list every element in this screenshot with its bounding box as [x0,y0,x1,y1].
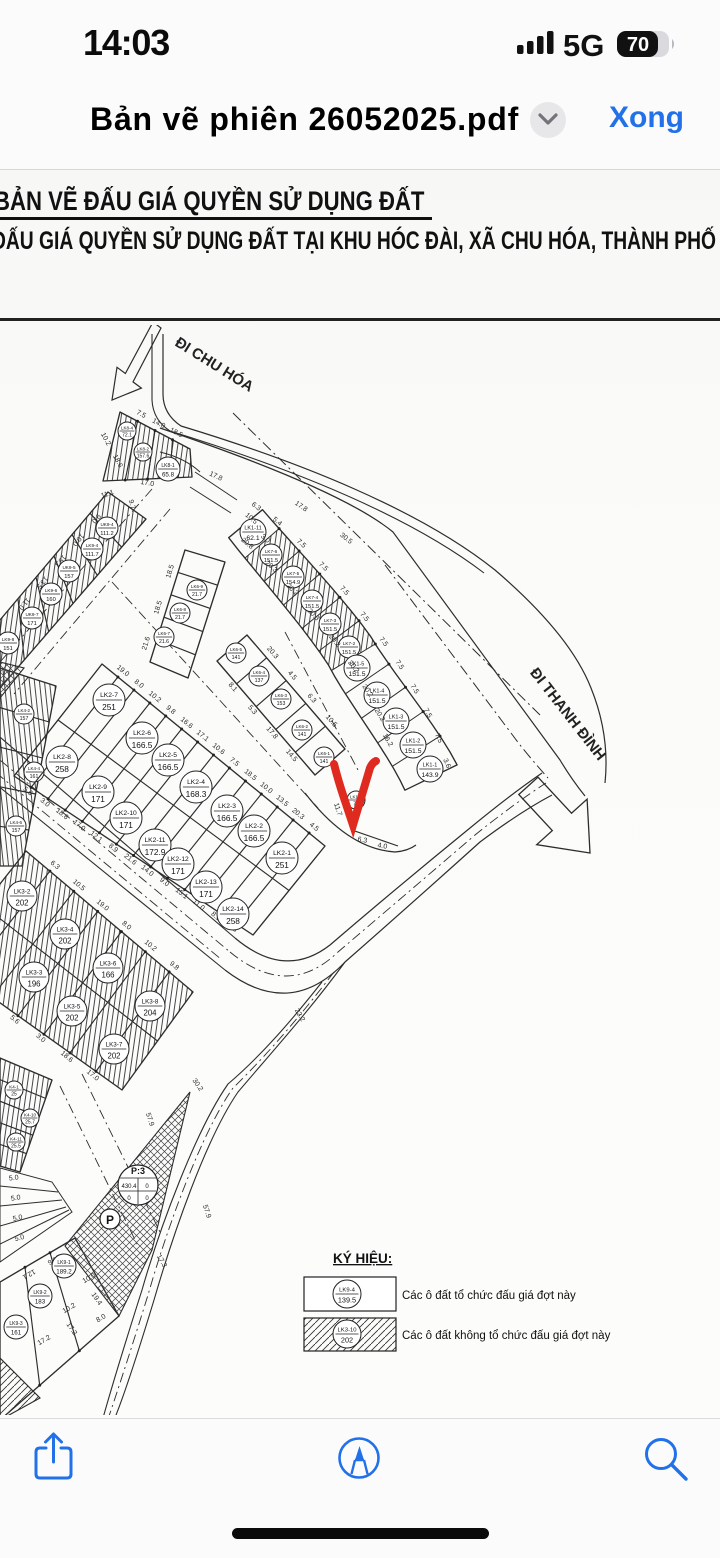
svg-text:18.6: 18.6 [54,807,69,821]
svg-text:17.2: 17.2 [37,1334,52,1347]
svg-text:LK2-5: LK2-5 [159,752,177,759]
svg-text:21.6: 21.6 [159,639,169,645]
svg-text:189.2: 189.2 [56,1268,72,1275]
svg-text:157: 157 [64,574,74,580]
svg-text:19.4: 19.4 [89,1292,103,1307]
svg-text:171: 171 [199,889,213,899]
svg-text:25.7: 25.7 [25,1120,35,1126]
svg-text:LK7-4: LK7-4 [306,595,319,600]
svg-text:LK6-8: LK6-8 [174,607,187,612]
svg-text:LK9-2: LK9-2 [33,1290,47,1296]
svg-text:Các ô đất tổ chức đấu giá đợt: Các ô đất tổ chức đấu giá đợt này [402,1290,576,1302]
svg-text:12.1: 12.1 [21,1267,36,1280]
svg-text:17.8: 17.8 [293,500,308,514]
svg-text:LK9-6: LK9-6 [45,588,58,593]
svg-text:LK2-8: LK2-8 [53,754,71,761]
svg-text:7.5: 7.5 [317,561,329,573]
svg-text:151.5: 151.5 [404,748,421,755]
svg-text:LK3-8: LK3-8 [142,998,159,1005]
svg-text:LK2-3: LK2-3 [218,803,236,810]
svg-text:111.7: 111.7 [85,552,98,558]
svg-text:LK7-2: LK7-2 [343,641,356,646]
svg-text:15.1: 15.1 [174,887,189,901]
svg-text:14.0: 14.0 [151,418,166,431]
svg-text:ĐI CHU HÓA: ĐI CHU HÓA [172,333,257,396]
svg-text:LK1-2: LK1-2 [406,739,421,745]
svg-text:21.6: 21.6 [141,636,152,651]
svg-text:151.5: 151.5 [387,724,404,731]
svg-text:LK3-10: LK3-10 [338,1328,358,1334]
svg-text:7.5: 7.5 [377,636,389,648]
svg-text:204: 204 [143,1008,157,1017]
svg-text:12.1: 12.1 [88,830,103,844]
svg-text:141: 141 [298,732,307,738]
svg-text:LK2-7: LK2-7 [100,692,118,699]
svg-text:UK9-7: UK9-7 [25,612,38,617]
svg-text:P:3: P:3 [131,1166,145,1176]
svg-text:LK6-7: LK6-7 [158,631,171,636]
svg-text:16.2: 16.2 [381,733,394,748]
svg-text:17.8: 17.8 [265,726,279,741]
svg-text:5.0: 5.0 [10,1194,21,1203]
svg-text:LK2-13: LK2-13 [195,879,217,886]
svg-text:LK2-2: LK2-2 [245,823,263,830]
svg-text:7.5: 7.5 [135,409,147,420]
svg-text:21.7: 21.7 [192,592,202,598]
svg-text:LK3-2: LK3-2 [14,888,31,895]
svg-text:65.8: 65.8 [162,471,175,478]
svg-text:141: 141 [320,759,329,765]
svg-text:202: 202 [58,936,71,945]
svg-text:LK6-9: LK6-9 [191,584,204,589]
svg-text:LK7-5: LK7-5 [287,571,300,576]
svg-text:UK9-4: UK9-4 [100,522,113,527]
svg-text:8.0: 8.0 [95,1313,107,1324]
svg-text:111.2: 111.2 [100,531,113,537]
svg-text:7.5: 7.5 [394,659,405,671]
svg-text:5.4: 5.4 [271,516,283,528]
svg-text:LK6-3: LK6-3 [275,693,288,698]
svg-text:14.0: 14.0 [140,864,155,878]
svg-text:166.5: 166.5 [217,813,238,823]
svg-text:17.2: 17.2 [64,1322,78,1337]
svg-text:57.9: 57.9 [144,1112,155,1127]
svg-text:18.5: 18.5 [168,427,183,440]
svg-text:196: 196 [27,979,40,988]
svg-text:183: 183 [35,1298,46,1305]
svg-text:202: 202 [15,898,28,907]
svg-text:LK3-7: LK3-7 [106,1041,123,1048]
svg-text:LK6-5: LK6-5 [230,647,243,652]
svg-text:LK2-1: LK2-1 [273,850,291,857]
svg-text:LK4-2: LK4-2 [18,708,31,713]
svg-text:8.0: 8.0 [120,920,132,932]
svg-text:LK9-8: LK9-8 [2,637,15,642]
svg-text:151: 151 [3,646,13,652]
svg-text:151.5: 151.5 [368,698,385,705]
svg-text:157: 157 [20,716,29,722]
svg-text:LK6-2: LK6-2 [296,724,309,729]
svg-text:LK8-4: LK8-4 [121,425,134,430]
svg-text:LK9-3: LK9-3 [9,1321,23,1327]
svg-text:172.9: 172.9 [145,847,166,857]
svg-text:LK2-9: LK2-9 [89,784,107,791]
svg-text:141: 141 [232,655,241,661]
svg-text:P: P [106,1213,114,1227]
svg-text:168.3: 168.3 [186,789,207,799]
svg-text:57.9: 57.9 [201,1204,212,1219]
svg-text:137: 137 [255,678,264,684]
svg-text:LK2-11: LK2-11 [144,837,165,844]
svg-text:8.0: 8.0 [133,678,145,690]
svg-text:LK2-14: LK2-14 [222,906,244,913]
svg-text:171: 171 [119,820,133,830]
svg-text:17.0: 17.0 [140,479,155,488]
svg-text:LK9-4: LK9-4 [86,543,99,548]
svg-text:6.3: 6.3 [357,836,368,845]
svg-text:UK9-5: UK9-5 [62,565,75,570]
svg-text:171: 171 [91,794,105,804]
svg-text:18.5: 18.5 [153,600,164,615]
svg-text:7.5: 7.5 [422,707,433,719]
svg-text:251: 251 [275,860,289,870]
svg-text:LK2-12: LK2-12 [167,856,189,863]
svg-text:LK4-6: LK4-6 [10,820,23,825]
svg-text:258: 258 [226,916,240,926]
svg-text:161: 161 [11,1329,22,1336]
svg-text:18.5: 18.5 [165,564,176,579]
svg-text:14.5: 14.5 [284,748,298,763]
svg-text:72.1: 72.1 [122,433,132,439]
svg-text:LK3-4: LK3-4 [57,926,74,933]
svg-text:10.2: 10.2 [99,432,112,447]
svg-text:258: 258 [55,764,69,774]
svg-text:5G: 5G [563,28,604,62]
svg-text:166: 166 [101,970,114,979]
svg-text:166.5: 166.5 [158,762,179,772]
svg-text:LK4-4: LK4-4 [28,766,41,771]
svg-text:LK3-6: LK3-6 [100,960,117,967]
svg-text:171: 171 [171,866,185,876]
svg-text:202: 202 [107,1051,120,1060]
svg-text:5.0: 5.0 [12,1214,23,1223]
svg-text:LK7-3: LK7-3 [324,618,337,623]
svg-text:30.5: 30.5 [338,532,353,546]
svg-text:251: 251 [102,702,116,712]
svg-text:LK1-3: LK1-3 [389,715,404,721]
svg-text:143.9: 143.9 [421,772,438,779]
svg-text:7.5: 7.5 [228,756,240,768]
svg-text:70: 70 [627,34,649,56]
svg-text:9.8: 9.8 [168,960,180,972]
svg-text:153: 153 [277,701,286,707]
svg-text:10.2: 10.2 [62,1302,77,1315]
svg-text:LK2-10: LK2-10 [115,810,137,817]
svg-text:LK8-1: LK8-1 [161,463,175,469]
svg-text:LK1-11: LK1-11 [244,526,261,532]
svg-text:K4-10: K4-10 [24,1112,37,1117]
svg-text:171: 171 [27,621,37,627]
svg-text:LK3-5: LK3-5 [64,1003,81,1010]
svg-text:11.7: 11.7 [332,802,343,817]
svg-text:LK7-6: LK7-6 [265,549,278,554]
svg-text:21.7: 21.7 [175,615,185,621]
svg-text:17.8: 17.8 [208,471,223,483]
svg-text:K4-11: K4-11 [10,1136,22,1141]
svg-text:139.5: 139.5 [338,1296,356,1305]
svg-text:202: 202 [65,1013,78,1022]
svg-text:25: 25 [11,1092,17,1098]
svg-text:LK9-1: LK9-1 [57,1260,71,1266]
svg-text:7.5: 7.5 [338,585,350,597]
svg-text:166.5: 166.5 [244,833,265,843]
svg-text:160: 160 [46,597,56,603]
svg-text:5.0: 5.0 [14,1234,25,1243]
svg-text:LK2-4: LK2-4 [187,779,205,786]
svg-text:LK6-4: LK6-4 [253,670,266,675]
svg-text:5.0: 5.0 [8,1174,19,1182]
svg-text:LK1-1: LK1-1 [423,763,438,769]
svg-text:LK3-3: LK3-3 [26,969,43,976]
svg-text:LK2-6: LK2-6 [133,730,151,737]
svg-text:6.3: 6.3 [49,860,61,872]
svg-text:202: 202 [341,1336,353,1345]
svg-text:166.5: 166.5 [132,740,153,750]
svg-text:7.5: 7.5 [433,732,444,744]
svg-text:Các ô đất không tổ chức đấu gi: Các ô đất không tổ chức đấu giá đợt này [402,1330,611,1342]
svg-text:157: 157 [12,828,21,834]
svg-text:4.5: 4.5 [308,821,320,833]
svg-text:9.8: 9.8 [164,704,176,716]
svg-text:151.5: 151.5 [323,627,337,633]
svg-text:430.4: 430.4 [121,1184,137,1190]
svg-text:30.2: 30.2 [190,1078,204,1093]
svg-text:157.6: 157.6 [137,454,150,460]
svg-text:LK6-1: LK6-1 [318,751,331,756]
svg-text:4.5: 4.5 [286,670,298,682]
svg-text:LK9-4: LK9-4 [339,1288,355,1294]
svg-text:6.3: 6.3 [306,693,318,705]
svg-text:K4-1: K4-1 [9,1084,19,1089]
svg-text:25.5: 25.5 [11,1144,21,1150]
svg-text:LK8-2: LK8-2 [137,446,150,451]
svg-text:KÝ HIỆU:: KÝ HIỆU: [333,1251,392,1266]
